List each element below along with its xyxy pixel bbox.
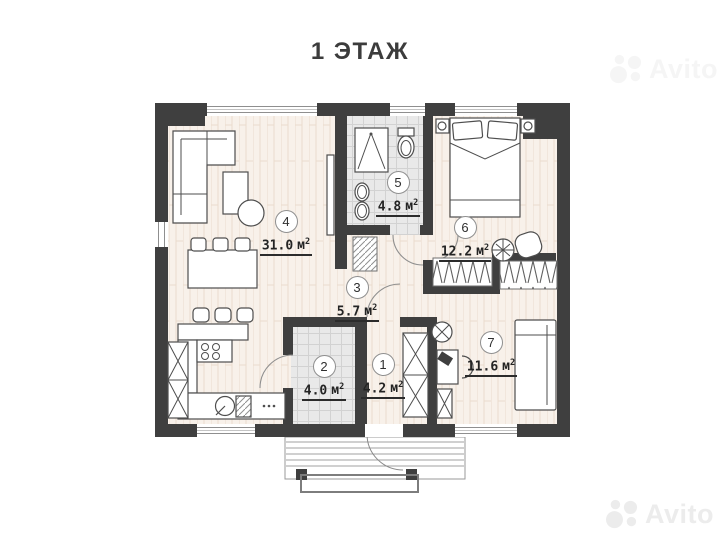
floor-plan: 4 31.0м2 5 4.8м2 6 12.2м2 3 5.7м2 2 4.0м… <box>155 103 570 495</box>
avito-logo-icon <box>606 497 638 531</box>
bedside-lamp <box>524 122 532 130</box>
watermark-top: Avito <box>610 52 718 86</box>
bar-chair <box>215 308 231 322</box>
dining-chair <box>191 238 206 251</box>
pillow <box>452 121 482 140</box>
dining-chair <box>213 238 228 251</box>
floor-plan-page: 1 ЭТАЖ Avito <box>0 0 720 540</box>
pillow <box>487 121 517 140</box>
dining-chair <box>235 238 250 251</box>
watermark-text: Avito <box>649 52 718 86</box>
closet-hatch <box>433 258 492 286</box>
window <box>155 222 168 247</box>
bar-chair <box>237 308 253 322</box>
entrance-porch <box>285 434 465 492</box>
corner-pier <box>155 103 205 126</box>
dining-table <box>188 250 257 288</box>
watermark-text: Avito <box>645 497 714 531</box>
floor-plan-drawing <box>155 103 570 495</box>
closet-hatch <box>500 261 557 289</box>
window <box>207 103 317 116</box>
toilet-tank <box>398 128 414 136</box>
round-table <box>238 200 264 226</box>
avito-logo-icon <box>610 52 642 86</box>
bedside-lamp <box>438 122 446 130</box>
drawer-dots <box>263 405 276 408</box>
tv-console <box>327 155 334 235</box>
single-bed <box>515 320 556 410</box>
bar-counter <box>178 324 248 340</box>
toilet <box>398 136 414 158</box>
bar-chair <box>193 308 209 322</box>
dishwasher <box>236 396 251 417</box>
window <box>197 424 255 437</box>
window <box>455 103 517 116</box>
window <box>390 103 425 116</box>
window <box>455 424 517 437</box>
closet-hatch <box>353 237 377 271</box>
watermark-bottom: Avito <box>606 497 714 531</box>
front-door-opening <box>365 424 403 437</box>
room2-tile-floor <box>291 327 357 424</box>
